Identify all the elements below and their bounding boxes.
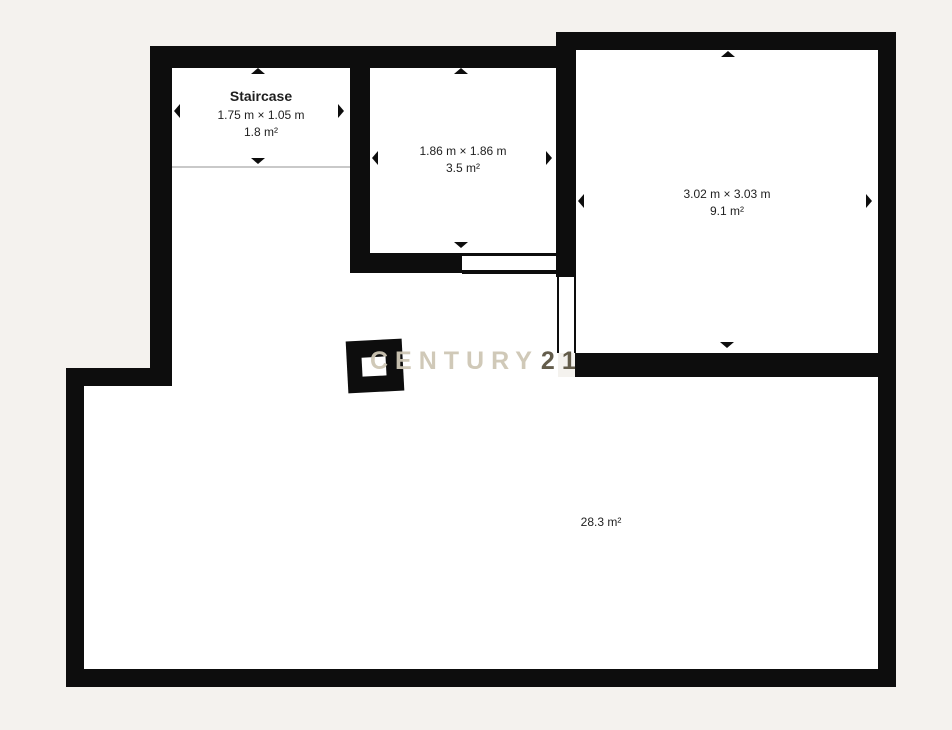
wall-top-right	[556, 32, 896, 50]
room2-dimensions: 1.86 m × 1.86 m	[370, 143, 556, 160]
staircase-label-block: Staircase 1.75 m × 1.05 m 1.8 m²	[172, 87, 350, 140]
wall-left-lower	[66, 368, 84, 687]
main-room-area: 28.3 m²	[501, 514, 701, 531]
room3-dim-arrow-up-icon	[721, 51, 735, 57]
room2-label-block: 1.86 m × 1.86 m 3.5 m²	[370, 143, 556, 176]
room2-area: 3.5 m²	[370, 160, 556, 177]
door-opening-room2	[462, 253, 556, 274]
staircase-dim-arrow-down-icon	[251, 158, 265, 164]
wall-divider-room2-room3	[556, 32, 576, 277]
wall-divider-staircase-room2	[350, 46, 370, 273]
door-opening-room3	[557, 277, 576, 353]
staircase-room-name: Staircase	[172, 87, 350, 106]
watermark-brand-number: 21	[541, 347, 583, 375]
wall-room2-bottom	[350, 253, 462, 273]
staircase-boundary-line	[172, 166, 350, 168]
room2-dim-arrow-down-icon	[454, 242, 468, 248]
room3-area: 9.1 m²	[576, 203, 878, 220]
main-room-label-block: 28.3 m²	[501, 514, 701, 531]
staircase-dimensions: 1.75 m × 1.05 m	[172, 107, 350, 124]
room3-dimensions: 3.02 m × 3.03 m	[576, 186, 878, 203]
wall-left-upper	[150, 46, 172, 386]
staircase-dim-arrow-up-icon	[251, 68, 265, 74]
watermark-brand-text: CENTURY	[370, 347, 539, 375]
main-room-interior	[84, 377, 878, 669]
wall-room3-bottom	[575, 353, 896, 377]
wall-bottom	[66, 669, 896, 687]
floor-plan: Staircase 1.75 m × 1.05 m 1.8 m² 1.86 m …	[0, 0, 952, 730]
room2-dim-arrow-up-icon	[454, 68, 468, 74]
staircase-area: 1.8 m²	[172, 124, 350, 141]
watermark: CENTURY21	[370, 348, 583, 376]
room3-label-block: 3.02 m × 3.03 m 9.1 m²	[576, 186, 878, 219]
room3-dim-arrow-down-icon	[720, 342, 734, 348]
